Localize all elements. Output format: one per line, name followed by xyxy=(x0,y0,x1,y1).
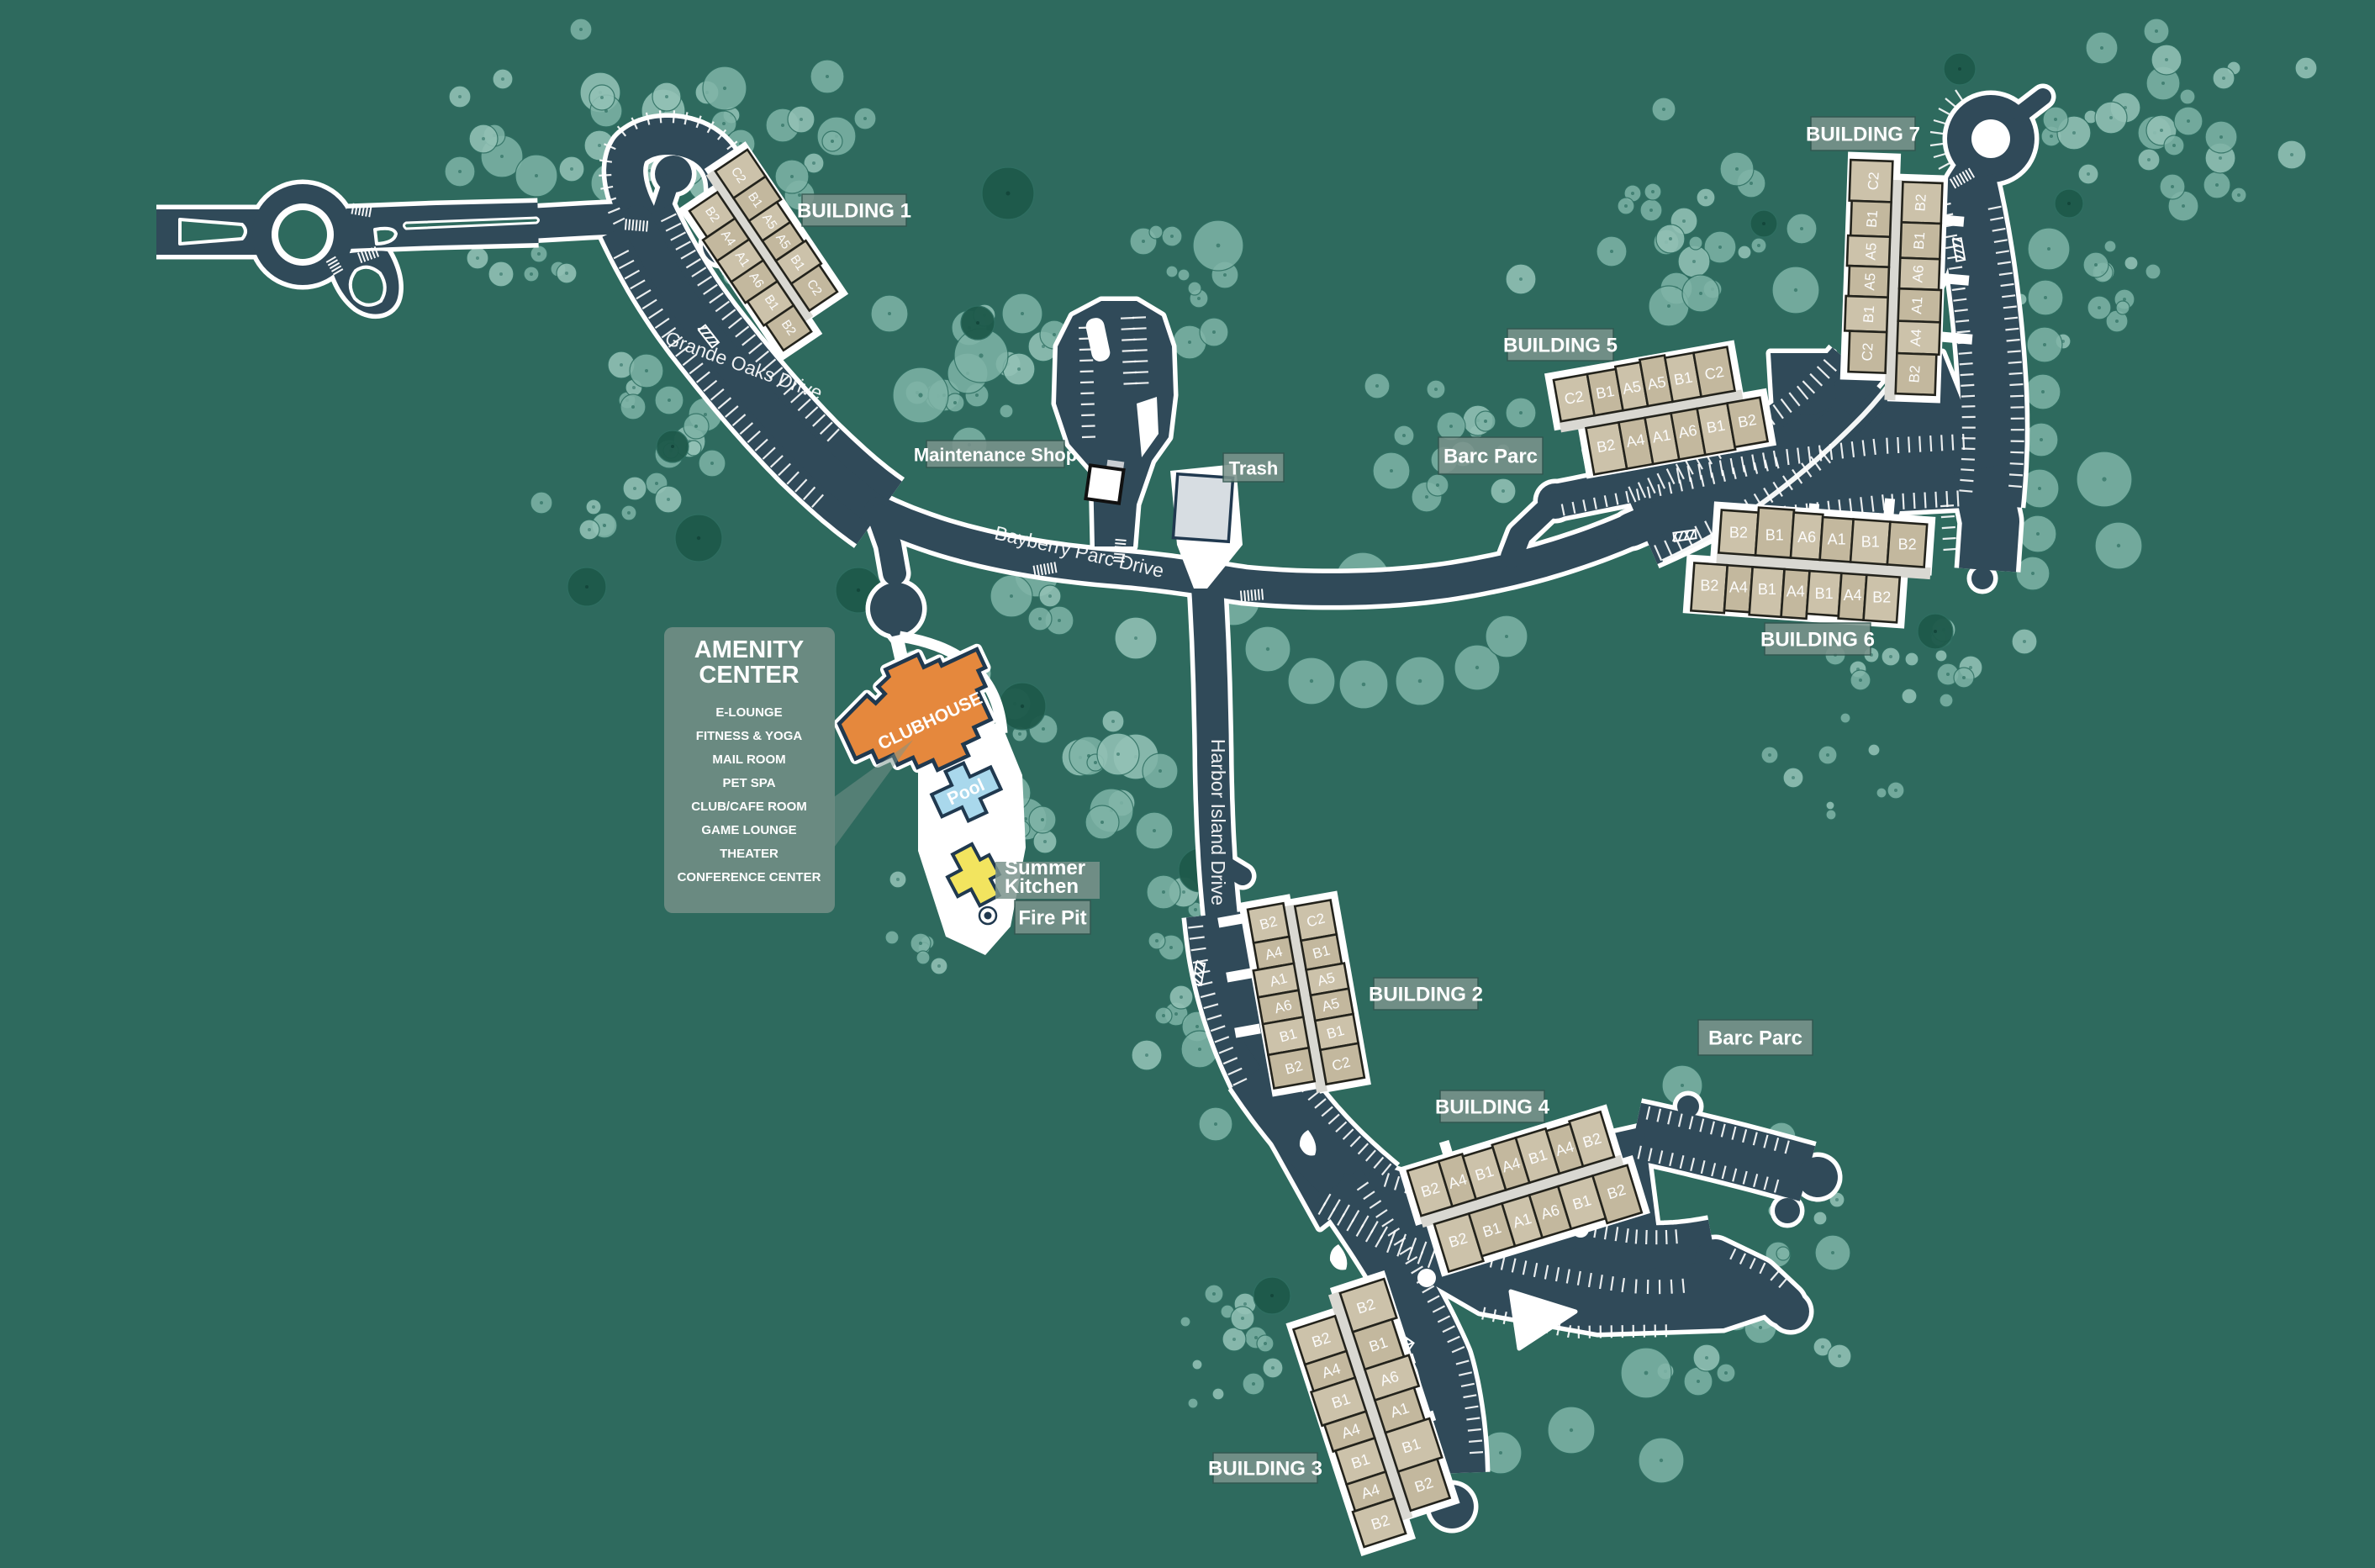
svg-text:C2: C2 xyxy=(1865,172,1882,191)
svg-text:BUILDING 4: BUILDING 4 xyxy=(1435,1096,1550,1119)
svg-text:GAME LOUNGE: GAME LOUNGE xyxy=(701,823,796,837)
svg-text:Harbor Island Drive: Harbor Island Drive xyxy=(1207,739,1229,905)
svg-text:MAIL ROOM: MAIL ROOM xyxy=(712,752,785,767)
svg-text:B1: B1 xyxy=(1864,209,1881,228)
svg-text:Maintenance Shop: Maintenance Shop xyxy=(914,445,1077,466)
svg-text:BUILDING 1: BUILDING 1 xyxy=(797,200,911,223)
svg-text:B2: B2 xyxy=(1596,436,1617,457)
svg-text:B1: B1 xyxy=(1861,534,1880,551)
svg-text:AMENITY: AMENITY xyxy=(694,636,805,663)
svg-text:B2: B2 xyxy=(1912,193,1929,212)
svg-text:A1: A1 xyxy=(1908,296,1925,314)
svg-text:B1: B1 xyxy=(1815,585,1834,602)
svg-text:FITNESS & YOGA: FITNESS & YOGA xyxy=(696,729,803,743)
svg-text:A1: A1 xyxy=(1651,426,1672,446)
svg-text:A4: A4 xyxy=(1844,587,1862,604)
svg-text:C2: C2 xyxy=(1859,342,1876,362)
svg-text:CLUB/CAFE ROOM: CLUB/CAFE ROOM xyxy=(691,800,807,814)
svg-text:A5: A5 xyxy=(1862,242,1879,261)
svg-text:A4: A4 xyxy=(1787,583,1805,599)
svg-text:A6: A6 xyxy=(1909,265,1926,283)
svg-text:BUILDING 5: BUILDING 5 xyxy=(1503,335,1618,357)
svg-text:A1: A1 xyxy=(1828,531,1846,548)
svg-text:B1: B1 xyxy=(1673,368,1694,388)
svg-text:A5: A5 xyxy=(1861,272,1878,291)
svg-text:A4: A4 xyxy=(1729,579,1748,596)
svg-text:B1: B1 xyxy=(1765,527,1784,544)
svg-text:B1: B1 xyxy=(1911,231,1928,250)
svg-text:Fire Pit: Fire Pit xyxy=(1018,907,1086,930)
svg-text:B2: B2 xyxy=(1737,411,1758,431)
svg-text:C2: C2 xyxy=(1703,363,1725,383)
svg-text:Barc Parc: Barc Parc xyxy=(1443,446,1538,468)
svg-text:E-LOUNGE: E-LOUNGE xyxy=(715,705,782,720)
svg-text:B1: B1 xyxy=(1860,305,1877,324)
svg-text:Barc Parc: Barc Parc xyxy=(1708,1027,1802,1050)
svg-text:B2: B2 xyxy=(1898,536,1917,553)
svg-text:B1: B1 xyxy=(1595,383,1616,403)
svg-text:B2: B2 xyxy=(1872,589,1891,606)
svg-text:C2: C2 xyxy=(1563,388,1585,408)
svg-text:BUILDING 3: BUILDING 3 xyxy=(1208,1458,1322,1481)
svg-text:B2: B2 xyxy=(1729,525,1748,541)
svg-text:Kitchen: Kitchen xyxy=(1005,875,1079,898)
svg-text:A5: A5 xyxy=(1646,373,1667,393)
svg-text:CENTER: CENTER xyxy=(699,662,799,689)
svg-text:PET SPA: PET SPA xyxy=(722,776,775,790)
svg-text:BUILDING 6: BUILDING 6 xyxy=(1760,629,1875,652)
svg-text:BUILDING 7: BUILDING 7 xyxy=(1806,124,1920,146)
svg-text:A5: A5 xyxy=(1621,377,1642,398)
svg-text:A4: A4 xyxy=(1625,430,1646,451)
svg-text:A6: A6 xyxy=(1677,422,1698,442)
svg-text:A4: A4 xyxy=(1908,329,1924,347)
svg-text:BUILDING 2: BUILDING 2 xyxy=(1369,984,1483,1006)
svg-text:Trash: Trash xyxy=(1229,458,1279,479)
svg-text:A6: A6 xyxy=(1797,529,1816,546)
svg-text:B1: B1 xyxy=(1758,581,1776,598)
svg-text:B2: B2 xyxy=(1700,577,1718,594)
svg-text:B1: B1 xyxy=(1705,417,1726,437)
svg-text:B2: B2 xyxy=(1906,365,1923,383)
svg-text:CONFERENCE CENTER: CONFERENCE CENTER xyxy=(678,870,821,884)
svg-text:THEATER: THEATER xyxy=(720,847,778,861)
